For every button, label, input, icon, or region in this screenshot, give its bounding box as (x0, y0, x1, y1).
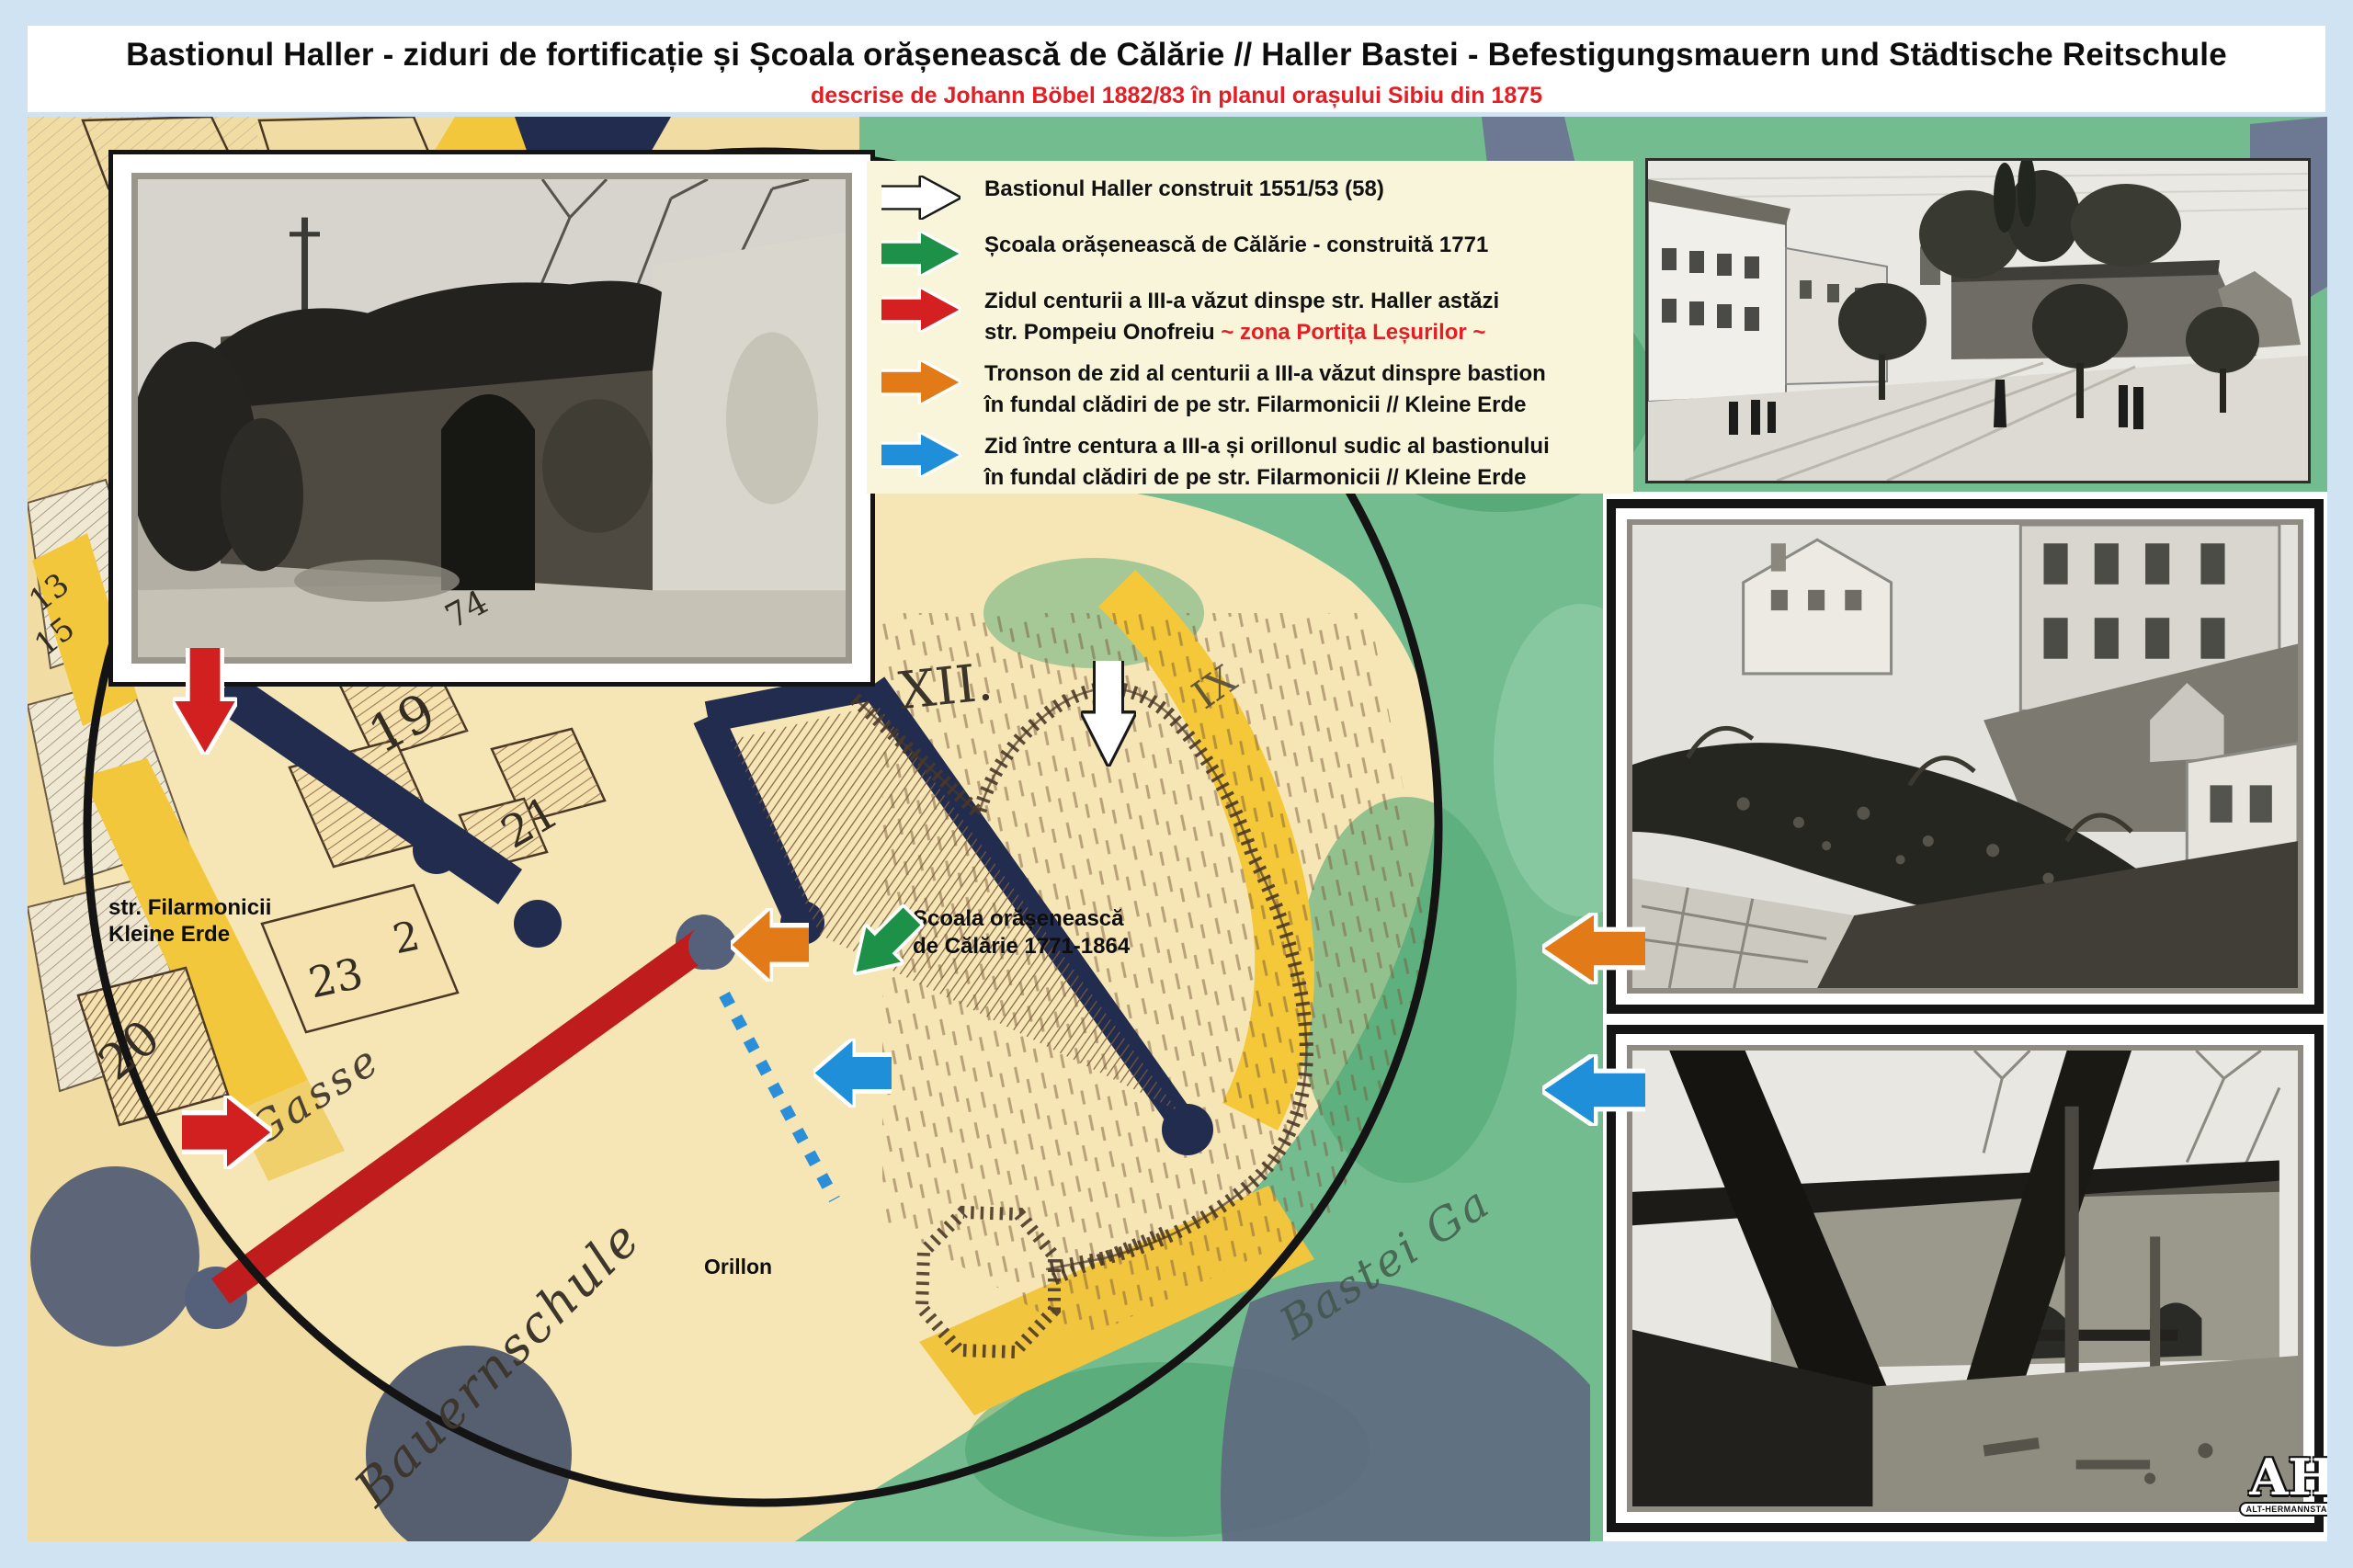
alt-hermannstadt-logo: AH ALT-HERMANNSTADT (2237, 1454, 2327, 1517)
green-southwest-arrow-school (841, 900, 928, 987)
logo-monogram: AH (2237, 1454, 2327, 1500)
legend-line-black: str. Pompeiu Onofreiu (984, 320, 1221, 345)
white-right-arrow (881, 176, 961, 220)
legend-box: Bastionul Haller construit 1551/53 (58) … (867, 161, 1633, 494)
page-title: Bastionul Haller - ziduri de fortificați… (28, 37, 2325, 74)
orange-right-arrow (881, 360, 961, 404)
legend-text: Bastionul Haller construit 1551/53 (58) (984, 174, 1384, 205)
blue-left-arrow-photo (1542, 1054, 1645, 1126)
school-label-line1: Școala orășenească (913, 905, 1130, 933)
red-right-arrow (881, 288, 961, 332)
logo-caption: ALT-HERMANNSTADT (2239, 1502, 2327, 1517)
legend-line: Zidul centurii a III-a văzut dinspe str.… (984, 289, 1499, 313)
title-band: Bastionul Haller - ziduri de fortificați… (28, 26, 2325, 112)
legend-line: în fundal clădiri de pe str. Filarmonici… (984, 392, 1526, 417)
legend-line-red: ~ zona Portița Leșurilor ~ (1221, 320, 1485, 345)
orange-left-arrow-map (731, 908, 809, 982)
photo-gate-ruin (108, 150, 875, 687)
street-label-ro: str. Filarmonicii (108, 894, 271, 921)
red-right-arrow-map (182, 1096, 272, 1169)
photo-street-engraving (1645, 158, 2311, 483)
map-collage: str. Filarmonicii Kleine Erde Școala oră… (28, 117, 2327, 1541)
orange-left-arrow-photo (1542, 913, 1645, 984)
school-label-line2: de Călărie 1771-1864 (913, 933, 1130, 960)
blue-right-arrow (881, 433, 961, 477)
legend-item-wall-blue: Zid între centura a III-a și orillonul s… (881, 431, 1617, 494)
photo-gate-ruin-image (131, 173, 852, 664)
page-subtitle: descrise de Johann Böbel 1882/83 în plan… (28, 83, 2325, 109)
legend-item-wall-orange: Tronson de zid al centurii a III-a văzut… (881, 358, 1617, 421)
photo-beams-ruin-image (1627, 1045, 2303, 1512)
district-xii-label: XII. (896, 653, 995, 722)
photo-beams-ruin (1607, 1025, 2324, 1532)
legend-text: Tronson de zid al centurii a III-a văzut… (984, 358, 1546, 421)
blue-left-arrow-map (813, 1039, 892, 1108)
red-down-arrow (173, 648, 237, 755)
white-down-arrow-bastion (1081, 661, 1136, 767)
legend-item-bastion: Bastionul Haller construit 1551/53 (58) (881, 174, 1617, 220)
street-label-de: Kleine Erde (108, 921, 271, 948)
legend-item-wall-red: Zidul centurii a III-a văzut dinspe str.… (881, 286, 1617, 348)
legend-line: Tronson de zid al centurii a III-a văzut… (984, 361, 1546, 386)
street-label: str. Filarmonicii Kleine Erde (108, 894, 271, 948)
poster-page: Bastionul Haller - ziduri de fortificați… (0, 0, 2353, 1568)
legend-line: în fundal clădiri de pe str. Filarmonici… (984, 465, 1526, 490)
legend-text: Zid între centura a III-a și orillonul s… (984, 431, 1550, 494)
legend-item-school: Școala orășenească de Călărie - construi… (881, 230, 1617, 276)
legend-text: Zidul centurii a III-a văzut dinspe str.… (984, 286, 1499, 348)
school-label: Școala orășenească de Călărie 1771-1864 (913, 905, 1130, 960)
legend-text: Școala orășenească de Călărie - construi… (984, 230, 1488, 261)
photo-wall-ruin (1607, 499, 2324, 1014)
green-right-arrow (881, 232, 961, 276)
legend-line: Zid între centura a III-a și orillonul s… (984, 434, 1550, 459)
orillon-label: Orillon (704, 1255, 772, 1279)
photo-wall-ruin-image (1627, 519, 2303, 994)
